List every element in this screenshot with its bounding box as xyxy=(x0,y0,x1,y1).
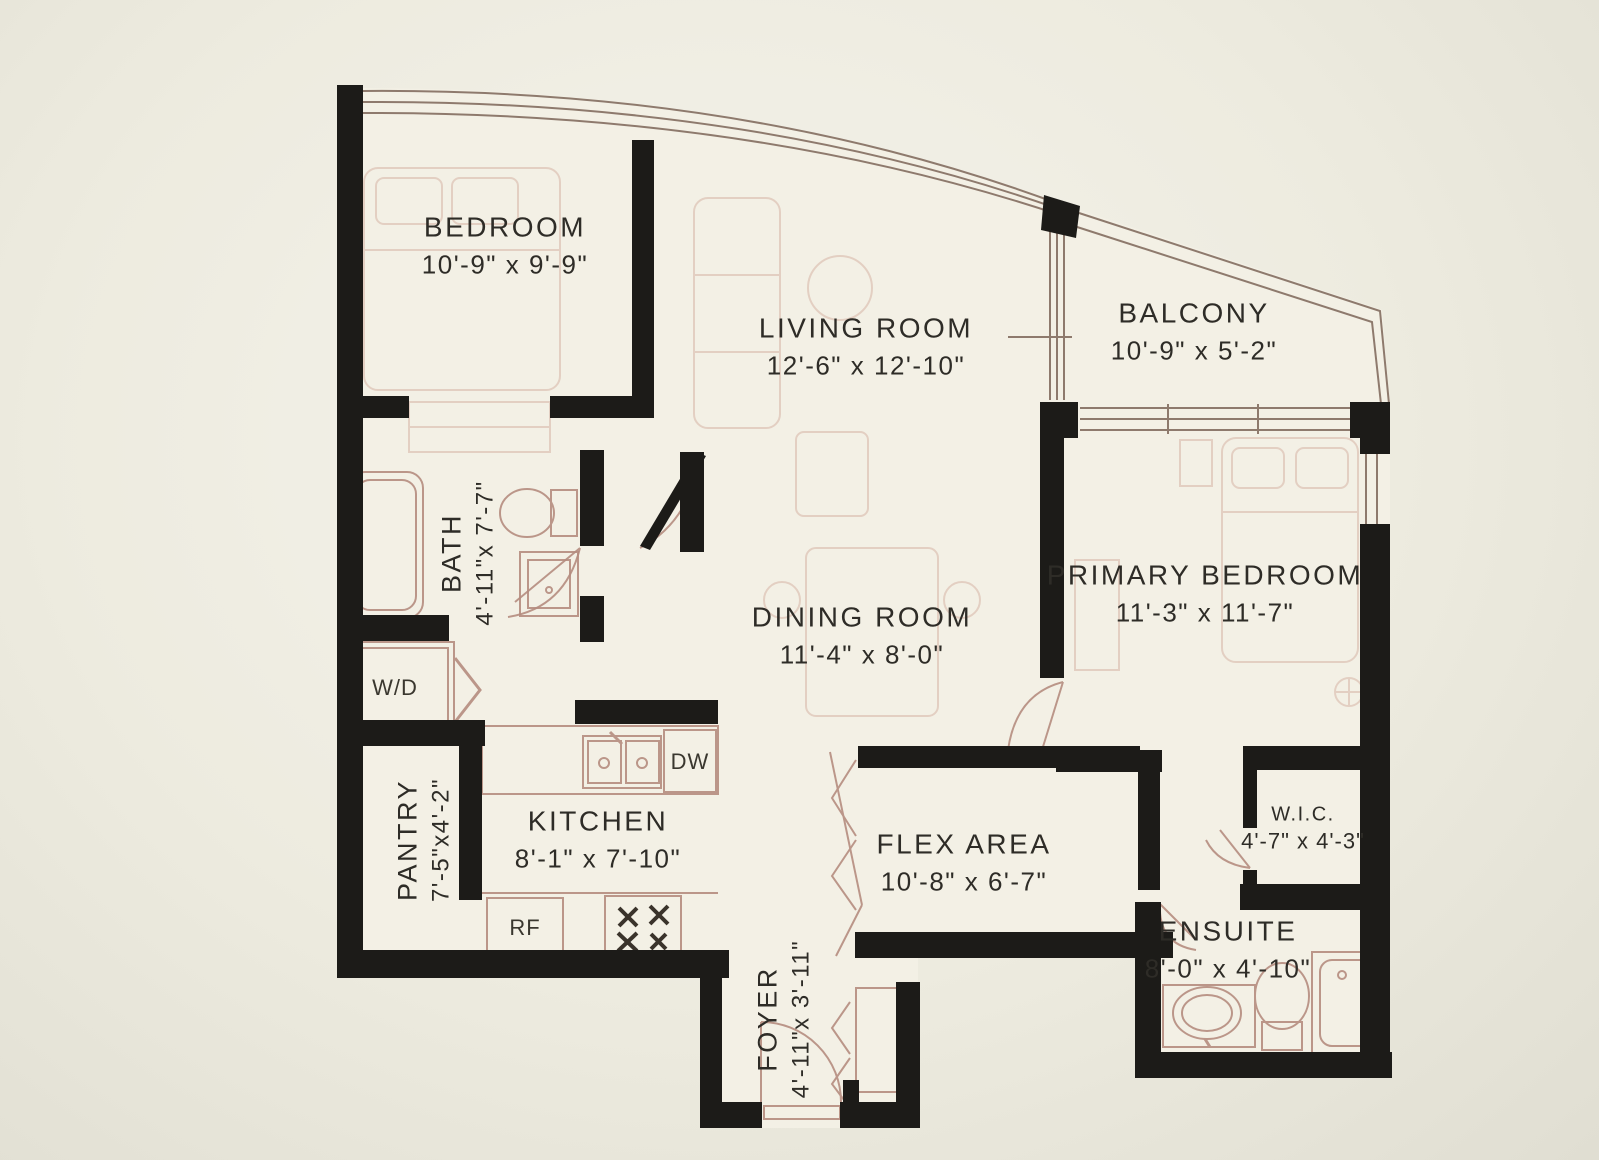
appliance-label-refrigerator: RF xyxy=(509,915,540,941)
appliance-label-dishwasher: DW xyxy=(671,749,710,775)
room-name: FLEX AREA xyxy=(876,829,1051,861)
room-label-kitchen: KITCHEN 8'-1" x 7'-10" xyxy=(515,806,681,875)
room-label-foyer: FOYER 4'-11"x 3'-11" xyxy=(753,940,816,1098)
room-dims: 8'-1" x 7'-10" xyxy=(515,844,681,875)
room-dims: 11'-3" x 11'-7" xyxy=(1047,598,1364,629)
room-name: BATH xyxy=(437,480,468,625)
appliance-label-washer-dryer: W/D xyxy=(372,675,418,701)
room-name: FOYER xyxy=(753,940,784,1098)
room-label-primary-bedroom: PRIMARY BEDROOM 11'-3" x 11'-7" xyxy=(1047,560,1364,629)
room-dims: 11'-4" x 8'-0" xyxy=(752,640,972,671)
room-label-ensuite: ENSUITE 8'-0" x 4'-10" xyxy=(1145,916,1311,985)
room-name: DINING ROOM xyxy=(752,602,972,634)
room-name: KITCHEN xyxy=(515,806,681,838)
room-name: PRIMARY BEDROOM xyxy=(1047,560,1364,592)
room-dims: 10'-8" x 6'-7" xyxy=(876,867,1051,898)
room-dims: 8'-0" x 4'-10" xyxy=(1145,954,1311,985)
room-label-balcony: BALCONY 10'-9" x 5'-2" xyxy=(1111,298,1277,367)
room-label-flex-area: FLEX AREA 10'-8" x 6'-7" xyxy=(876,829,1051,898)
room-dims: 10'-9" x 9'-9" xyxy=(422,250,588,281)
room-dims: 7'-5"x4'-2" xyxy=(428,778,456,902)
room-label-pantry: PANTRY 7'-5"x4'-2" xyxy=(393,778,456,902)
room-label-living-room: LIVING ROOM 12'-6" x 12'-10" xyxy=(759,313,973,382)
floor-plan: BEDROOM 10'-9" x 9'-9" LIVING ROOM 12'-6… xyxy=(0,0,1599,1160)
room-dims: 4'-7" x 4'-3" xyxy=(1241,829,1365,855)
room-dims: 4'-11"x 7'-7" xyxy=(472,480,500,625)
room-dims: 4'-11"x 3'-11" xyxy=(788,940,816,1098)
room-label-wic: W.I.C. 4'-7" x 4'-3" xyxy=(1241,804,1365,855)
room-name: BALCONY xyxy=(1111,298,1277,330)
room-name: ENSUITE xyxy=(1145,916,1311,948)
room-label-bath: BATH 4'-11"x 7'-7" xyxy=(437,480,500,625)
room-dims: 12'-6" x 12'-10" xyxy=(759,351,973,382)
room-name: LIVING ROOM xyxy=(759,313,973,345)
room-name: W.I.C. xyxy=(1241,804,1365,827)
room-label-dining-room: DINING ROOM 11'-4" x 8'-0" xyxy=(752,602,972,671)
room-label-bedroom: BEDROOM 10'-9" x 9'-9" xyxy=(422,212,588,281)
room-dims: 10'-9" x 5'-2" xyxy=(1111,336,1277,367)
room-name: BEDROOM xyxy=(422,212,588,244)
room-name: PANTRY xyxy=(393,778,424,902)
